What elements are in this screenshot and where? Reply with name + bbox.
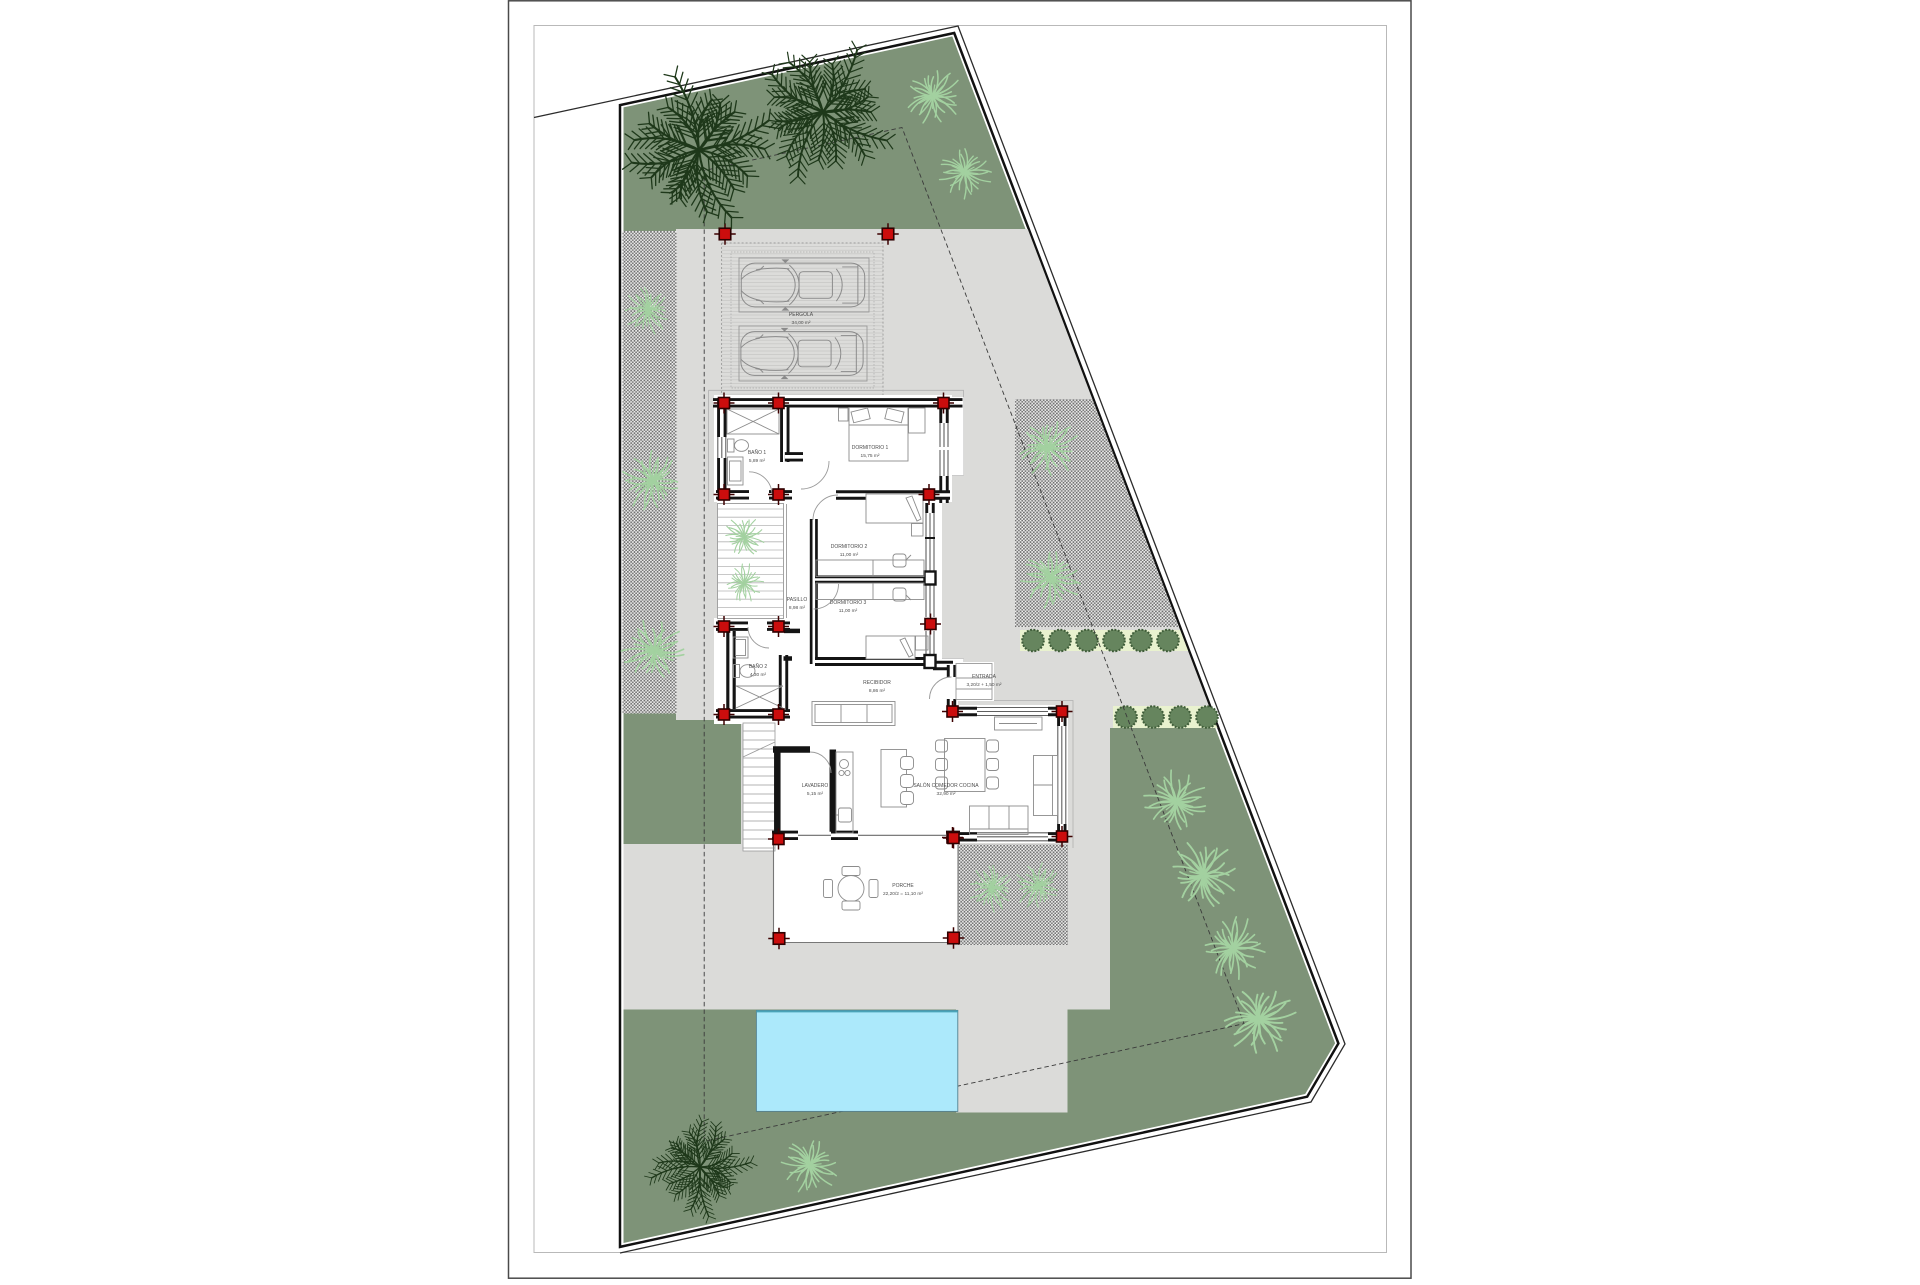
svg-text:DORMITORIO 1: DORMITORIO 1	[852, 445, 889, 451]
svg-text:DORMITORIO 2: DORMITORIO 2	[831, 544, 868, 550]
svg-text:LAVADERO: LAVADERO	[802, 783, 829, 789]
svg-text:RECIBIDOR: RECIBIDOR	[863, 680, 891, 686]
svg-text:8,86 m²: 8,86 m²	[869, 688, 886, 694]
svg-text:15,75 m²: 15,75 m²	[861, 453, 880, 459]
svg-text:32,90 m²: 32,90 m²	[937, 791, 956, 797]
svg-text:5,15 m²: 5,15 m²	[807, 791, 824, 797]
svg-text:34,00 m²: 34,00 m²	[792, 320, 811, 326]
svg-text:5,89 m²: 5,89 m²	[749, 458, 766, 464]
svg-text:SALÓN COMEDOR COCINA: SALÓN COMEDOR COCINA	[913, 782, 979, 789]
svg-text:PASILLO: PASILLO	[787, 597, 808, 603]
svg-text:ENTRADA: ENTRADA	[972, 674, 997, 680]
svg-text:4,30 m²: 4,30 m²	[750, 672, 767, 678]
svg-text:DORMITORIO 3: DORMITORIO 3	[830, 600, 867, 606]
svg-text:3,20/2 + 1,50 m²: 3,20/2 + 1,50 m²	[966, 682, 1001, 688]
svg-text:11,00 m²: 11,00 m²	[840, 552, 859, 558]
svg-text:22,20/2 = 11,10 m²: 22,20/2 = 11,10 m²	[883, 891, 923, 897]
svg-text:BAÑO 2: BAÑO 2	[749, 663, 768, 670]
svg-text:8,98 m²: 8,98 m²	[789, 605, 806, 611]
svg-text:11,00 m²: 11,00 m²	[839, 608, 858, 614]
svg-text:PERGOLA: PERGOLA	[789, 312, 814, 318]
svg-text:BAÑO 1: BAÑO 1	[748, 449, 767, 456]
svg-text:PORCHE: PORCHE	[892, 883, 914, 889]
